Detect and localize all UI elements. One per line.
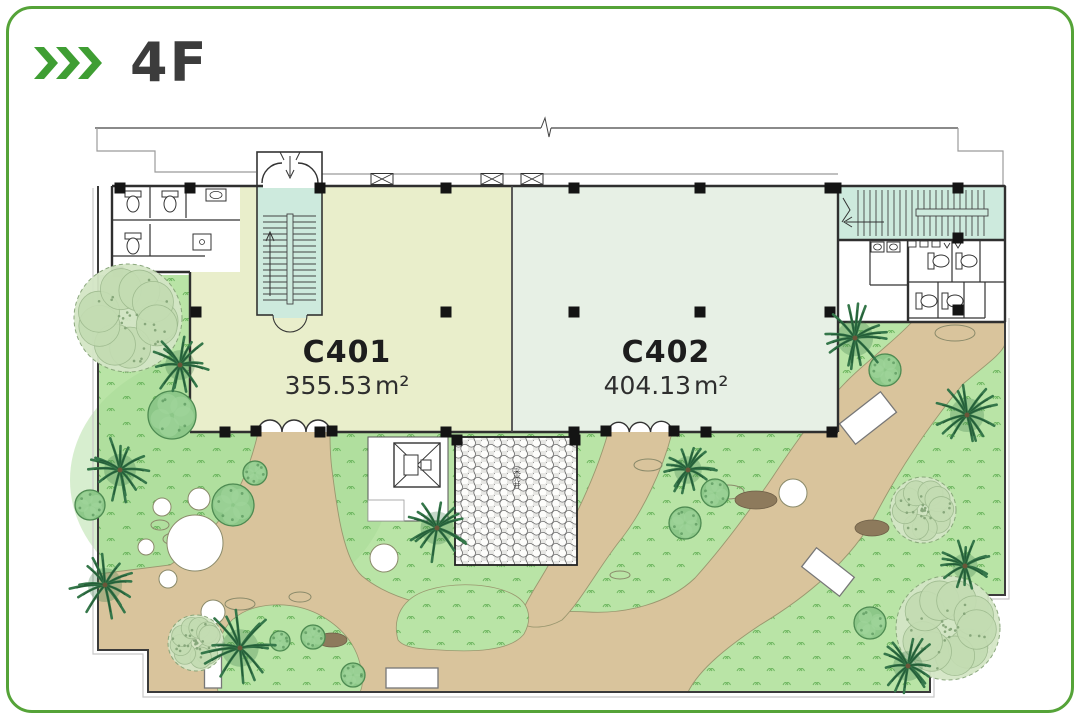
rock (735, 491, 777, 509)
tree-speckle (183, 644, 186, 647)
shrub-dot (677, 512, 680, 515)
shrub-dot (871, 632, 874, 635)
shrub-dot (350, 682, 353, 685)
shrub-dot (695, 523, 698, 526)
tree-speckle (907, 498, 910, 501)
column (327, 426, 338, 437)
tree-speckle (910, 629, 913, 632)
tree-speckle (154, 329, 157, 332)
pebble-court: 采光井 (455, 437, 577, 565)
shrub-blob (684, 511, 697, 524)
tree-speckle (900, 499, 903, 502)
tree-speckle (920, 495, 923, 498)
tree-blob (199, 625, 220, 646)
sink-icon (887, 242, 900, 252)
tree-speckle (923, 517, 926, 520)
stepping-stone-circle (779, 479, 807, 507)
shrub-dot (241, 492, 244, 495)
tree-speckle (140, 357, 143, 360)
tree-speckle (948, 628, 951, 631)
column (953, 183, 964, 194)
unit-area-label: 404.13m² (604, 371, 729, 400)
shrub-dot (860, 629, 863, 632)
tree-speckle (163, 330, 166, 333)
tree-speckle (949, 502, 952, 505)
column (695, 183, 706, 194)
stepping-stone-circle (167, 515, 223, 571)
shrub-dot (161, 427, 164, 430)
shrub-dot (888, 379, 891, 382)
tree-speckle (943, 639, 946, 642)
shrub-dot (879, 617, 882, 620)
tree-speckle (136, 314, 139, 317)
shrub-dot (79, 507, 82, 510)
shrub-dot (307, 643, 310, 646)
tree-speckle (143, 347, 146, 350)
urinal-icon (920, 241, 928, 247)
tree-speckle (941, 620, 944, 623)
palm-trunk (965, 413, 970, 418)
tree-speckle (978, 635, 981, 638)
shrub-blob (231, 489, 249, 507)
stair-rail (916, 209, 988, 216)
tree-speckle (172, 637, 175, 640)
tree-speckle (964, 604, 967, 607)
bench (386, 668, 438, 688)
shrub (270, 631, 290, 651)
unit-area-label: 355.53m² (285, 371, 410, 400)
column (115, 183, 126, 194)
shrub (243, 461, 267, 485)
shrub-dot (183, 403, 186, 406)
toilet-icon (921, 295, 937, 307)
folding-door-c402 (608, 421, 672, 432)
column (953, 233, 964, 244)
shrub-dot (256, 464, 259, 467)
tree-speckle (110, 299, 113, 302)
urinal-icon (932, 241, 940, 247)
column (220, 427, 231, 438)
palm-trunk (686, 468, 691, 473)
tree (890, 477, 956, 543)
sink-icon (871, 242, 884, 252)
tree-speckle (915, 528, 918, 531)
tree-speckle (969, 634, 972, 637)
shrub-dot (280, 633, 283, 636)
column (185, 183, 196, 194)
shrub-dot (311, 644, 314, 647)
shrub-dot (241, 515, 244, 518)
tree-speckle (129, 314, 132, 317)
shrub-dot (245, 471, 248, 474)
tree-speckle (906, 618, 909, 621)
column (315, 427, 326, 438)
column (601, 426, 612, 437)
column (831, 183, 842, 194)
stepping-stone-circle (159, 570, 177, 588)
tree-speckle (948, 507, 951, 510)
tree-speckle (938, 651, 941, 654)
shrub-dot (704, 489, 707, 492)
tree-speckle (944, 626, 947, 629)
shrub-dot (673, 525, 676, 528)
shrub-dot (719, 483, 722, 486)
shrub-dot (320, 637, 323, 640)
tree-speckle (189, 635, 192, 638)
tree-speckle (179, 650, 182, 653)
stair-rail (287, 214, 293, 304)
shrub-dot (230, 489, 233, 492)
tree-speckle (122, 317, 125, 320)
palm-trunk (178, 363, 183, 368)
tree-speckle (921, 510, 924, 513)
shrub-dot (260, 466, 263, 469)
column (953, 305, 964, 316)
tree-speckle (924, 507, 927, 510)
shrub (301, 625, 325, 649)
shrub-dot (285, 637, 288, 640)
tree-speckle (983, 636, 986, 639)
tree-blob (136, 305, 177, 346)
tree-speckle (920, 617, 923, 620)
shrub-blob (711, 481, 723, 493)
tree-speckle (906, 511, 909, 514)
column (441, 307, 452, 318)
tree-speckle (927, 510, 930, 513)
tree-speckle (175, 648, 178, 651)
column (315, 183, 326, 194)
tree-speckle (196, 647, 199, 650)
column (669, 426, 680, 437)
palm-trunk (853, 336, 858, 341)
site-boundary (95, 118, 1003, 186)
shrub-dot (874, 364, 877, 367)
tree-speckle (948, 636, 951, 639)
shrub-dot (343, 675, 346, 678)
tree-speckle (946, 609, 949, 612)
tree-speckle (193, 639, 196, 642)
shrub-dot (80, 497, 83, 500)
tree-speckle (165, 300, 168, 303)
shrub-dot (862, 612, 865, 615)
shrub (669, 507, 701, 539)
toilet-icon (961, 255, 977, 267)
tree-speckle (963, 612, 966, 615)
column (827, 427, 838, 438)
column (569, 183, 580, 194)
shrub (212, 484, 254, 526)
palm-trunk (963, 564, 968, 569)
shrub-dot (704, 495, 707, 498)
shrub-dot (888, 358, 891, 361)
shrub-dot (872, 370, 875, 373)
column (570, 435, 581, 446)
tree-speckle (204, 623, 207, 626)
unit-id-label: C402 (622, 335, 711, 370)
tree-speckle (139, 360, 142, 363)
toilet-icon (933, 255, 949, 267)
palm-trunk (118, 468, 123, 473)
tree-speckle (154, 343, 157, 346)
toilet-icon (127, 238, 139, 254)
equipment-room (368, 437, 448, 521)
tree-speckle (133, 360, 136, 363)
urinal-icon (908, 241, 916, 247)
column (569, 307, 580, 318)
column (452, 435, 463, 446)
shower-icon (193, 234, 211, 250)
stepping-stone-circle (188, 488, 210, 510)
tree-speckle (118, 315, 121, 318)
sink-icon (206, 189, 226, 201)
shrub-dot (318, 630, 321, 633)
tree-speckle (144, 323, 147, 326)
tree-speckle (157, 340, 160, 343)
column (251, 426, 262, 437)
stepping-stone-circle (153, 498, 171, 516)
shrub-dot (98, 509, 101, 512)
stepping-stone-circle (138, 539, 154, 555)
tree-speckle (936, 667, 939, 670)
tree-speckle (178, 645, 181, 648)
shrub-dot (282, 646, 285, 649)
shrub-dot (313, 627, 316, 630)
tree-speckle (954, 629, 957, 632)
shrub-blob (170, 396, 190, 416)
shrub-dot (692, 514, 695, 517)
shrub-dot (347, 667, 350, 670)
tree (168, 615, 224, 671)
rock (855, 520, 889, 536)
shrub-dot (92, 514, 95, 517)
shrub (341, 663, 365, 687)
shrub-dot (894, 372, 897, 375)
windows-layer (371, 174, 543, 185)
palm-trunk (238, 646, 243, 651)
column (695, 307, 706, 318)
shrub-dot (272, 637, 275, 640)
tree-speckle (929, 517, 932, 520)
shrub-dot (722, 497, 725, 500)
stepping-stone-circle (370, 544, 398, 572)
tree-speckle (191, 629, 194, 632)
shrub-dot (217, 500, 220, 503)
shrub (148, 391, 196, 439)
shrub-dot (164, 398, 167, 401)
shrub-dot (178, 429, 181, 432)
tree-speckle (124, 327, 127, 330)
shrub-dot (252, 480, 255, 483)
tree-speckle (187, 645, 190, 648)
shrub-dot (247, 476, 250, 479)
shrub-dot (879, 625, 882, 628)
unit-id-label: C401 (303, 335, 392, 370)
column (701, 427, 712, 438)
floor-plan-canvas: 采光井 C401 355.53 (0, 0, 1080, 719)
tree-blob (957, 610, 997, 650)
tree-speckle (942, 511, 945, 514)
break-line-icon (541, 118, 551, 137)
tree-speckle (208, 647, 211, 650)
shrub-dot (222, 514, 225, 517)
shrub-dot (262, 473, 265, 476)
tree-speckle (920, 515, 923, 518)
tree-speckle (201, 640, 204, 643)
tree-speckle (907, 527, 910, 530)
tree-speckle (957, 626, 960, 629)
court-label: 采光井 (513, 467, 521, 490)
palm-trunk (103, 583, 108, 588)
tree-speckle (922, 504, 925, 507)
tree-speckle (153, 323, 156, 326)
tree-speckle (126, 311, 129, 314)
shrub-dot (892, 361, 895, 364)
shrub (701, 479, 729, 507)
shrub-blob (871, 614, 884, 627)
shrub-dot (360, 673, 363, 676)
shrub-dot (865, 611, 868, 614)
tree-speckle (200, 656, 203, 659)
palm-trunk (435, 526, 440, 531)
column (441, 183, 452, 194)
tree-speckle (944, 630, 947, 633)
shrub-dot (231, 518, 234, 521)
tree-speckle (120, 322, 123, 325)
tree-speckle (912, 511, 915, 514)
tree-speckle (199, 648, 202, 651)
toilet-icon (127, 196, 139, 212)
tree-speckle (148, 279, 151, 282)
tree-speckle (185, 634, 188, 637)
shrub-dot (304, 631, 307, 634)
column (441, 427, 452, 438)
shrub-dot (183, 424, 186, 427)
shrub-dot (680, 511, 683, 514)
column (191, 307, 202, 318)
shrub-dot (680, 532, 683, 535)
shrub-dot (99, 500, 102, 503)
tree-speckle (111, 296, 114, 299)
shrub (854, 607, 886, 639)
shrub (75, 490, 105, 520)
palm-trunk (906, 664, 911, 669)
shrub-dot (711, 482, 714, 485)
tree-speckle (98, 300, 101, 303)
shrub-dot (286, 640, 289, 643)
shrub-dot (710, 501, 713, 504)
shrub-dot (352, 665, 355, 668)
toilet-icon (164, 196, 176, 212)
tree-speckle (942, 624, 945, 627)
tree-speckle (908, 504, 911, 507)
shrub-dot (89, 493, 92, 496)
